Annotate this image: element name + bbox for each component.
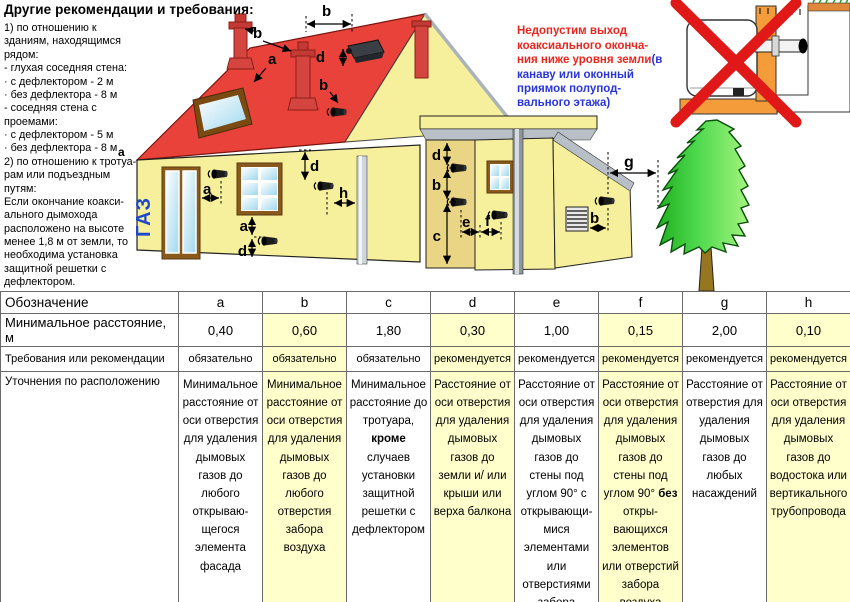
distance-cell-d: 0,30 [431,314,515,347]
warning-text-red: Недопустим выход коаксиального оконча- н… [517,25,651,66]
column-letter-a: a [179,292,263,314]
distance-cell-g: 2,00 [683,314,767,347]
dim-label-h: h [339,185,348,202]
clarification-cell-d: Расстояние от оси отверстия для удаления… [431,372,515,602]
porch-post-highlight [515,129,519,274]
distance-cell-b: 0,60 [263,314,347,347]
column-letter-b: b [263,292,347,314]
chimney-peak [412,21,431,78]
tree-crown [657,120,749,254]
dim-label-c-annex: c [433,228,441,245]
tree-trunk [699,247,714,291]
row-label: Обозначение [1,292,179,314]
requirements-table-body: ОбозначениеabcdefghМинимальное расстояни… [1,292,850,602]
row-label: Уточнения по расположению [1,372,179,602]
clarification-cell-f: Расстояние от оси отверстия для удаления… [599,372,683,602]
clarification-cell-a: Минимальное расстояние от оси отверстия … [179,372,263,602]
dim-label-d-roof: d [316,49,325,66]
vent-grille [566,207,588,231]
requirement-cell-h: рекомендуется [767,347,850,372]
distance-cell-a: 0,40 [179,314,263,347]
dim-label-b-grille: b [590,210,599,227]
table-row: Обозначениеabcdefgh [1,292,850,314]
clarification-cell-h: Расстояние от оси отверстия для удаления… [767,372,850,602]
column-letter-c: c [347,292,431,314]
boiler-nub [733,88,744,96]
requirement-cell-d: рекомендуется [431,347,515,372]
clarification-cell-e: Расстояние от оси отверстия для удаления… [515,372,599,602]
topsoil [808,3,850,11]
dim-label-b-annex: b [432,177,441,194]
clarification-cell-c: Минимальное расстояние до тротуа­ра, кро… [347,372,431,602]
forbidden-inset [676,0,850,122]
distance-cell-e: 1,00 [515,314,599,347]
small-window [487,161,513,193]
dim-label-a-skylight: a [268,51,277,68]
page-title: Другие рекомендации и требования: [4,2,264,17]
distance-cell-h: 0,10 [767,314,850,347]
table-row: Минимальное расстояние, м0,400,601,800,3… [1,314,850,347]
table-row: Уточнения по расположениюМинимальное рас… [1,372,850,602]
pipe-cap [799,39,808,54]
notes-block: Другие рекомендации и требования: 1) по … [4,2,264,290]
infographic-page: ГАЗ [0,0,850,602]
dim-label-g: g [624,154,634,171]
dim-label-d-annex: d [432,147,441,164]
dim-label-e: e [462,214,470,231]
notes-text: 1) по отношению к зданиям, находящимся р… [4,22,142,290]
requirement-cell-a: обязательно [179,347,263,372]
column-letter-e: e [515,292,599,314]
row-label: Требования или рекомендации [1,347,179,372]
downpipe-highlight [359,156,362,264]
row-label: Минимальное расстояние, м [1,314,179,347]
canopy-soffit [420,129,597,140]
requirement-cell-b: обязательно [263,347,347,372]
distance-cell-c: 1,80 [347,314,431,347]
table-row: Требования или рекомендацииобязательнооб… [1,347,850,372]
dim-label-b-roofterm: b [319,77,328,94]
pipe-flange [772,36,779,56]
tree [657,120,749,291]
requirement-cell-e: рекомендуется [515,347,599,372]
requirement-cell-c: обязательно [347,347,431,372]
requirement-cell-f: рекомендуется [599,347,683,372]
canopy [420,116,597,129]
column-letter-d: d [431,292,515,314]
column-letter-g: g [683,292,767,314]
warning-block: Недопустим выход коаксиального оконча- н… [517,10,669,111]
clarification-cell-g: Расстояние от отверстия для удаления дым… [683,372,767,602]
requirements-table: ОбозначениеabcdefghМинимальное расстояни… [0,291,850,602]
column-letter-h: h [767,292,850,314]
clarification-cell-b: Минимальное расстояние от оси отверстия … [263,372,347,602]
dim-label-d-eave: d [310,158,319,175]
distance-cell-f: 0,15 [599,314,683,347]
grass-icon [813,0,848,3]
requirement-cell-g: рекомендуется [683,347,767,372]
column-letter-f: f [599,292,683,314]
dim-label-b-roof: b [322,3,331,20]
